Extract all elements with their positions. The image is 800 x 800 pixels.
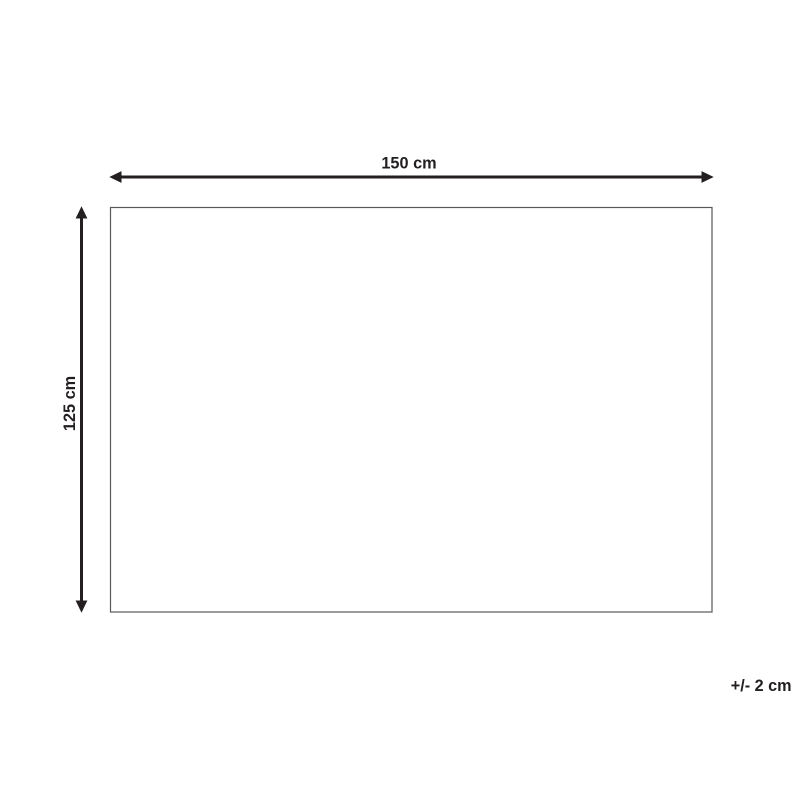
svg-text:150 cm: 150 cm	[381, 155, 436, 173]
svg-text:125 cm: 125 cm	[61, 376, 79, 431]
svg-text:+/- 2 cm: +/- 2 cm	[731, 677, 792, 695]
